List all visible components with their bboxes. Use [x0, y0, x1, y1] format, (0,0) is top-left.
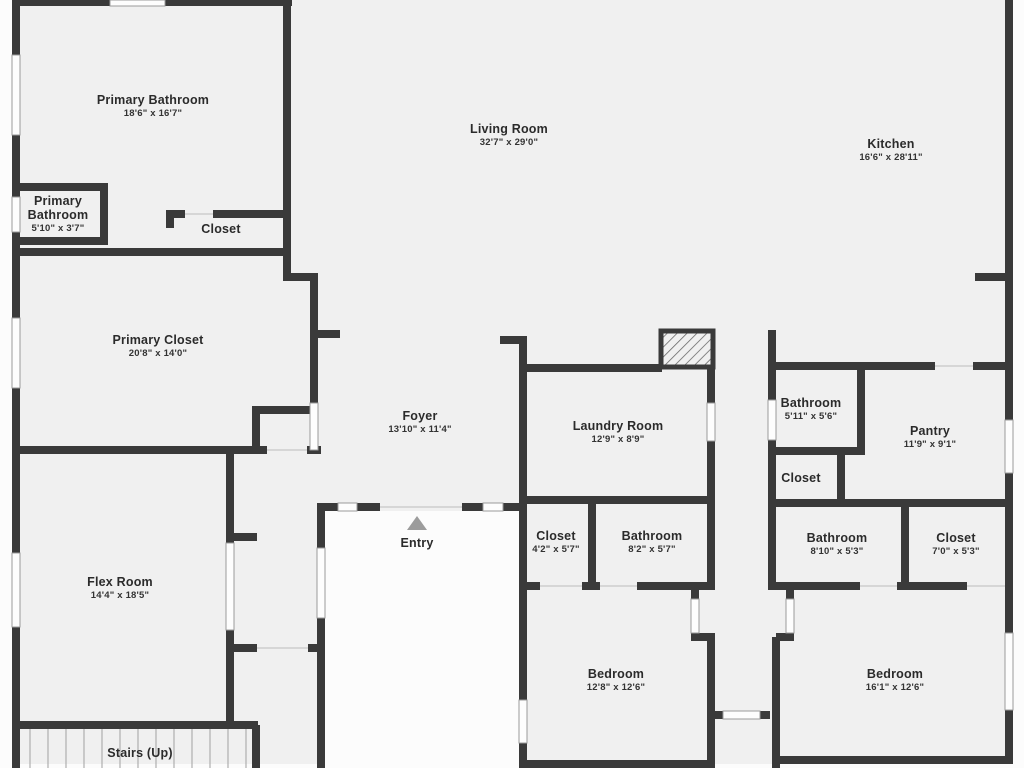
floor-plan: Primary Bathroom 18'6" x 16'7" Primary B…	[0, 0, 1024, 768]
interior-floor	[12, 0, 1024, 768]
floor-plan-drawing	[0, 0, 1024, 768]
fireplace-icon	[661, 331, 713, 367]
